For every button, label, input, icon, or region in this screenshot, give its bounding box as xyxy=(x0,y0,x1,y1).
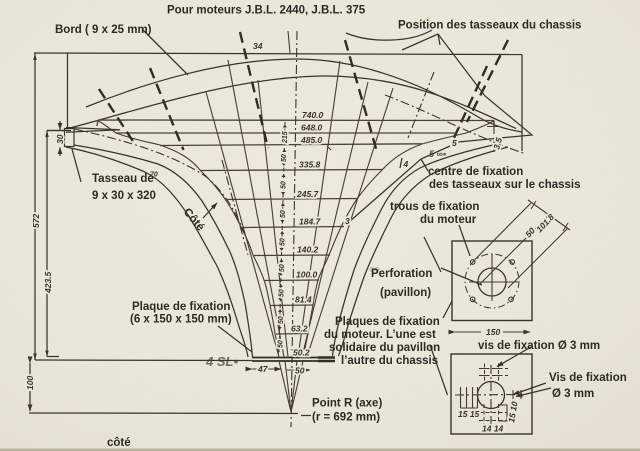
svg-text:50: 50 xyxy=(278,340,285,348)
svg-text:Position des tasseaux du chass: Position des tasseaux du chassis xyxy=(398,20,581,32)
svg-text:150: 150 xyxy=(486,327,500,337)
svg-text:du moteur: du moteur xyxy=(420,214,477,226)
svg-text:740.0: 740.0 xyxy=(302,110,324,120)
svg-text:Tasseau de: Tasseau de xyxy=(92,173,154,185)
svg-text:50.2: 50.2 xyxy=(293,348,310,358)
svg-text:100.0: 100.0 xyxy=(296,270,318,280)
svg-text:(6 x 150 x 150 mm): (6 x 150 x 150 mm) xyxy=(130,314,232,326)
svg-text:l’autre du chassis: l’autre du chassis xyxy=(341,355,438,367)
svg-text:5: 5 xyxy=(452,138,457,148)
svg-text:34: 34 xyxy=(253,41,263,51)
svg-text:Vis de fixation: Vis de fixation xyxy=(549,372,627,384)
svg-text:50: 50 xyxy=(281,154,288,162)
svg-text:trous de fixation: trous de fixation xyxy=(390,201,479,213)
svg-text:centre de fixation: centre de fixation xyxy=(428,166,523,178)
svg-text:4 SL•: 4 SL• xyxy=(205,354,238,369)
svg-text:solidaire du pavillon: solidaire du pavillon xyxy=(329,342,440,354)
svg-text:3: 3 xyxy=(345,216,350,226)
svg-text:140.2: 140.2 xyxy=(297,245,319,255)
svg-text:côté: côté xyxy=(107,437,131,449)
svg-text:70: 70 xyxy=(150,172,158,179)
svg-text:81.4: 81.4 xyxy=(295,295,312,305)
svg-text:14 14: 14 14 xyxy=(482,424,504,434)
svg-text:245.7: 245.7 xyxy=(296,189,320,199)
svg-text:63.2: 63.2 xyxy=(291,324,308,334)
svg-text:50: 50 xyxy=(278,316,285,324)
svg-text:Ø 3 mm: Ø 3 mm xyxy=(552,388,594,400)
svg-text:50: 50 xyxy=(279,264,286,272)
svg-text:335.8: 335.8 xyxy=(299,160,321,170)
svg-text:50: 50 xyxy=(280,238,287,246)
svg-text:215: 215 xyxy=(282,131,289,144)
svg-text:4: 4 xyxy=(403,159,409,169)
svg-text:50: 50 xyxy=(280,210,287,218)
svg-text:648.0: 648.0 xyxy=(301,123,323,133)
svg-text:50: 50 xyxy=(295,366,305,376)
svg-text:9 x 30 x 320: 9 x 30 x 320 xyxy=(92,190,156,202)
svg-text:100: 100 xyxy=(25,376,35,390)
svg-text:184.7: 184.7 xyxy=(299,217,322,227)
svg-text:des tasseaux sur le chassis: des tasseaux sur le chassis xyxy=(429,179,581,191)
svg-text:423.5: 423.5 xyxy=(43,271,53,294)
svg-text:Plaques de fixation: Plaques de fixation xyxy=(335,316,440,328)
svg-text:30: 30 xyxy=(55,134,65,144)
svg-text:(pavillon): (pavillon) xyxy=(380,287,431,299)
svg-text:Pour moteurs J.B.L. 2440, J.B.: Pour moteurs J.B.L. 2440, J.B.L. 375 xyxy=(167,5,366,17)
svg-text:Plaque de fixation: Plaque de fixation xyxy=(132,301,230,313)
svg-text:47: 47 xyxy=(257,364,269,374)
svg-text:Point R (axe): Point R (axe) xyxy=(312,398,382,410)
svg-text:Perforation: Perforation xyxy=(371,268,432,280)
svg-text:du moteur. L’une est: du moteur. L’une est xyxy=(324,329,436,341)
svg-text:(r = 692 mm): (r = 692 mm) xyxy=(312,412,380,424)
svg-text:vis de fixation Ø 3 mm: vis de fixation Ø 3 mm xyxy=(478,340,600,352)
svg-text:50: 50 xyxy=(281,181,288,189)
svg-text:485.0: 485.0 xyxy=(300,135,323,145)
svg-text:572: 572 xyxy=(31,214,41,228)
svg-text:50: 50 xyxy=(279,289,286,297)
svg-text:15 15: 15 15 xyxy=(458,409,480,419)
svg-text:Bord ( 9 x 25 mm): Bord ( 9 x 25 mm) xyxy=(55,24,152,36)
